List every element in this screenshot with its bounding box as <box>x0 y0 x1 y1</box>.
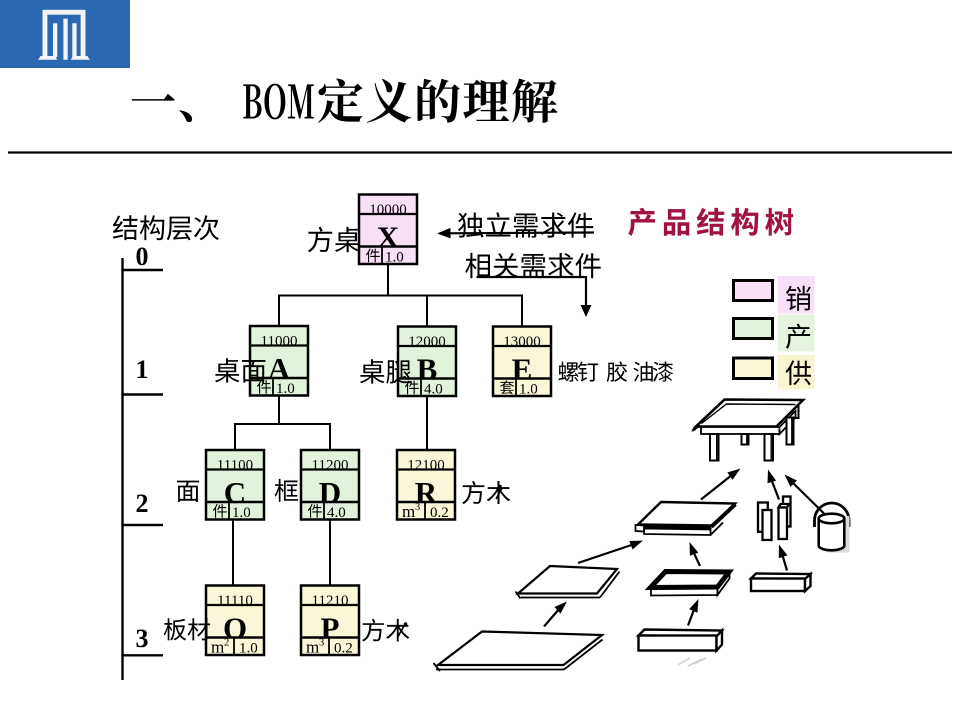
svg-text:3: 3 <box>415 502 420 513</box>
svg-text:1.0: 1.0 <box>385 250 404 266</box>
svg-text:4.0: 4.0 <box>327 505 346 521</box>
svg-text:11100: 11100 <box>217 458 253 474</box>
svg-text:3: 3 <box>319 638 324 649</box>
svg-text:1.0: 1.0 <box>239 641 258 657</box>
svg-text:0: 0 <box>136 242 149 271</box>
svg-text:13000: 13000 <box>503 334 541 350</box>
svg-text:10000: 10000 <box>369 202 407 218</box>
svg-text:m: m <box>306 638 319 657</box>
svg-text:12100: 12100 <box>407 458 445 474</box>
svg-text:m: m <box>402 502 415 521</box>
svg-text:1: 1 <box>136 355 149 384</box>
svg-text:3: 3 <box>136 624 149 653</box>
svg-text:11210: 11210 <box>312 593 349 609</box>
svg-text:m: m <box>211 638 224 657</box>
svg-text:1.0: 1.0 <box>276 381 295 397</box>
svg-text:1.0: 1.0 <box>519 382 538 398</box>
svg-text:12000: 12000 <box>408 334 446 350</box>
svg-text:2: 2 <box>224 638 229 649</box>
svg-text:11200: 11200 <box>312 458 349 474</box>
svg-text:11110: 11110 <box>217 593 253 609</box>
svg-text:2: 2 <box>136 489 149 518</box>
svg-text:1.0: 1.0 <box>232 505 251 521</box>
svg-text:11000: 11000 <box>261 334 298 350</box>
svg-text:0.2: 0.2 <box>334 641 353 657</box>
svg-text:0.2: 0.2 <box>430 505 449 521</box>
svg-text:4.0: 4.0 <box>424 382 443 398</box>
